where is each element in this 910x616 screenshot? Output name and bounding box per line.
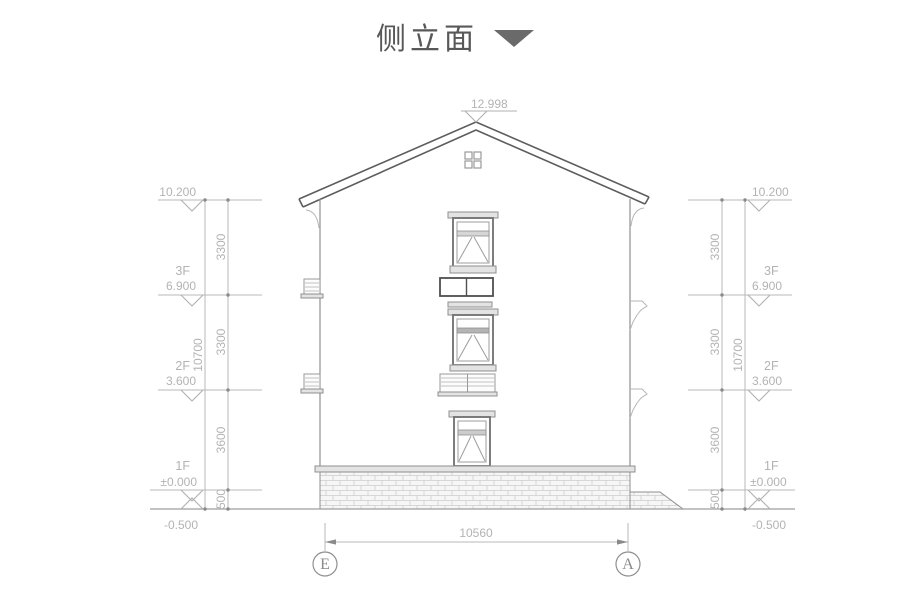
right-floor-3f-elevation: 6.900 (752, 279, 782, 293)
left-floor-3f-elevation: 6.900 (166, 279, 196, 293)
entry-step (630, 492, 683, 509)
bottom-width-label: 10560 (459, 526, 493, 540)
page-title: 侧立面 (376, 14, 478, 58)
elevation-triangle-icon (181, 200, 203, 211)
right-dimension-chain: 10.200 3F 6.900 2F 3.600 1F ±0.000 -0.50… (688, 185, 795, 532)
gable-vent-icon (465, 152, 481, 168)
plinth (315, 466, 683, 509)
elevation-triangle-icon (748, 295, 770, 306)
dim-arrow-left (325, 539, 336, 544)
right-seg-3: 3600 (708, 426, 722, 453)
axis-bubble-e: E (313, 552, 337, 576)
peak-elevation-marker: 12.998 (461, 97, 517, 122)
elevation-triangle-icon (748, 200, 770, 211)
dim-arrow-right (617, 539, 628, 544)
right-floor-1f-elevation: ±0.000 (750, 475, 787, 489)
right-eave-corbel (631, 208, 644, 226)
section-header: 侧立面 (0, 14, 910, 58)
left-balcony-louver-2f (301, 374, 323, 393)
elevation-triangle-up-icon (181, 498, 203, 509)
window-3f (448, 212, 498, 273)
collapse-arrow-icon[interactable] (494, 30, 534, 47)
axis-bubble-a: A (616, 552, 640, 576)
elevation-triangle-icon (181, 490, 203, 501)
left-total: 10700 (191, 338, 205, 372)
right-floor-2f-elevation: 3.600 (752, 374, 782, 388)
right-seg-2: 3300 (708, 328, 722, 355)
left-ground-elevation: -0.500 (164, 518, 198, 532)
right-total: 10700 (731, 338, 745, 372)
elevation-drawing: 12.998 10.200 3F 6.900 2F 3.600 1F ±0.00… (0, 0, 910, 616)
left-balcony-louver-3f (301, 279, 323, 298)
axis-label-e: E (320, 556, 330, 573)
right-cornice-2f (630, 389, 647, 418)
left-floor-3f: 3F (175, 264, 190, 278)
right-seg-4: 500 (708, 489, 722, 509)
building-outline (150, 122, 795, 509)
left-top-elevation: 10.200 (159, 185, 196, 199)
left-floor-1f-elevation: ±0.000 (160, 475, 197, 489)
right-seg-1: 3300 (708, 233, 722, 260)
left-eave-corbel (306, 210, 319, 228)
left-seg-3: 3600 (214, 426, 228, 453)
window-1f (449, 411, 495, 466)
right-ground-elevation: -0.500 (752, 518, 786, 532)
louver-railing-2f (438, 374, 497, 396)
left-seg-2: 3300 (214, 328, 228, 355)
right-cornice-3f (630, 301, 647, 330)
window-2f (448, 309, 498, 371)
axis-label-a: A (622, 556, 634, 573)
elevation-triangle-icon (465, 111, 487, 122)
railing-3f (440, 278, 493, 307)
elevation-triangle-up-icon (748, 498, 770, 509)
elevation-triangle-icon (181, 390, 203, 401)
left-seg-4: 500 (214, 489, 228, 509)
peak-elevation-label: 12.998 (471, 97, 508, 111)
elevation-triangle-icon (748, 390, 770, 401)
right-floor-2f: 2F (764, 359, 779, 373)
right-top-elevation: 10.200 (752, 185, 789, 199)
bottom-dimension: 10560 E A (313, 523, 640, 576)
elevation-triangle-icon (181, 295, 203, 306)
left-floor-2f: 2F (175, 359, 190, 373)
elevation-triangle-icon (748, 490, 770, 501)
right-floor-1f: 1F (764, 459, 779, 473)
right-floor-3f: 3F (764, 264, 779, 278)
left-floor-1f: 1F (175, 459, 190, 473)
left-seg-1: 3300 (214, 233, 228, 260)
left-floor-2f-elevation: 3.600 (166, 374, 196, 388)
left-dimension-chain: 10.200 3F 6.900 2F 3.600 1F ±0.000 -0.50… (150, 185, 262, 532)
